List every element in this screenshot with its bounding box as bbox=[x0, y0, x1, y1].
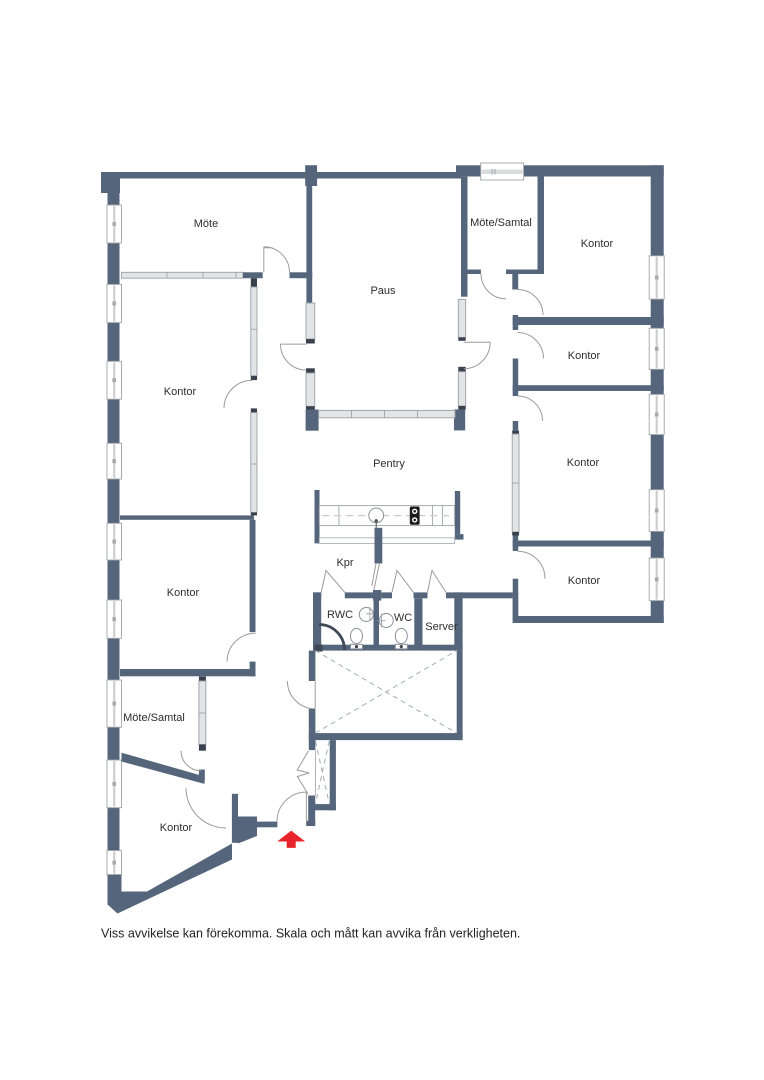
svg-text:Möte: Möte bbox=[194, 218, 218, 230]
svg-text:Möte/Samtal: Möte/Samtal bbox=[470, 217, 532, 229]
svg-text:Kontor: Kontor bbox=[167, 587, 200, 599]
svg-text:Kpr: Kpr bbox=[336, 557, 353, 569]
svg-text:Kontor: Kontor bbox=[581, 238, 614, 250]
svg-text:Kontor: Kontor bbox=[164, 386, 197, 398]
svg-text:Kontor: Kontor bbox=[568, 350, 601, 362]
svg-text:Kontor: Kontor bbox=[568, 575, 601, 587]
svg-text:Viss avvikelse kan förekomma.: Viss avvikelse kan förekomma. Skala och … bbox=[101, 927, 520, 941]
svg-text:Möte/Samtal: Möte/Samtal bbox=[123, 712, 185, 724]
svg-text:Server: Server bbox=[425, 621, 458, 633]
svg-text:Kontor: Kontor bbox=[160, 822, 193, 834]
svg-text:Kontor: Kontor bbox=[567, 457, 600, 469]
svg-text:RWC: RWC bbox=[327, 609, 353, 621]
svg-text:WC: WC bbox=[394, 612, 412, 624]
svg-text:Pentry: Pentry bbox=[373, 458, 405, 470]
svg-text:Paus: Paus bbox=[370, 285, 396, 297]
